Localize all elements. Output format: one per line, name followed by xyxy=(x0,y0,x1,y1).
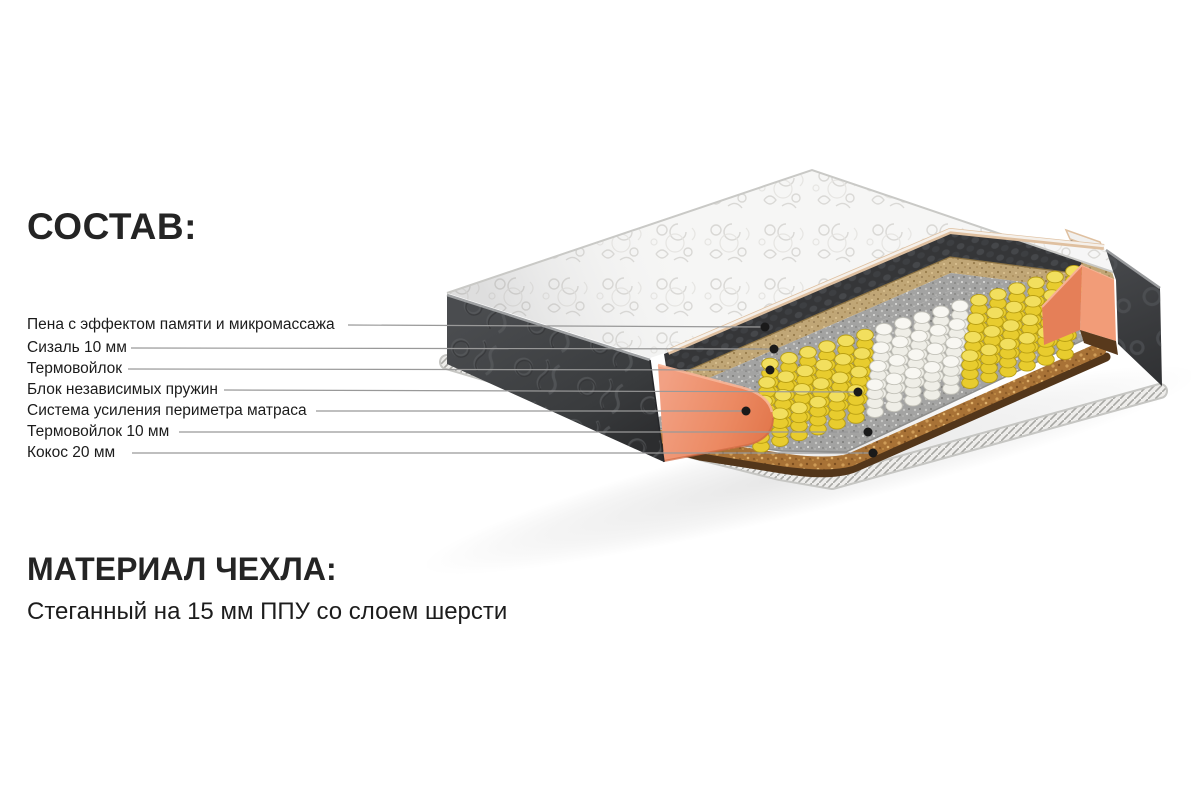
pocket-spring-white xyxy=(886,373,903,412)
pocket-spring-yellow xyxy=(1019,333,1036,372)
pocket-spring-white xyxy=(924,362,941,401)
leader-dot xyxy=(869,449,878,458)
leader-dot xyxy=(770,345,779,354)
pocket-spring-yellow xyxy=(772,408,789,447)
infographic-canvas: СОСТАВ: Пена с эффектом памяти и микрома… xyxy=(0,0,1191,794)
pocket-spring-yellow xyxy=(810,396,827,435)
leader-dot xyxy=(766,366,775,375)
pocket-spring-white xyxy=(905,367,922,406)
pocket-spring-white xyxy=(943,356,960,395)
pocket-spring-white xyxy=(867,379,884,418)
mattress-cutaway-illustration xyxy=(0,0,1191,794)
pocket-spring-yellow xyxy=(962,350,979,389)
leader-dot xyxy=(742,407,751,416)
pocket-spring-yellow xyxy=(791,402,808,441)
pocket-spring-yellow xyxy=(829,391,846,430)
pocket-spring-yellow xyxy=(1000,338,1017,377)
leader-dot xyxy=(761,323,770,332)
pocket-spring-yellow xyxy=(981,344,998,383)
leader-dot xyxy=(854,388,863,397)
leader-dot xyxy=(864,428,873,437)
